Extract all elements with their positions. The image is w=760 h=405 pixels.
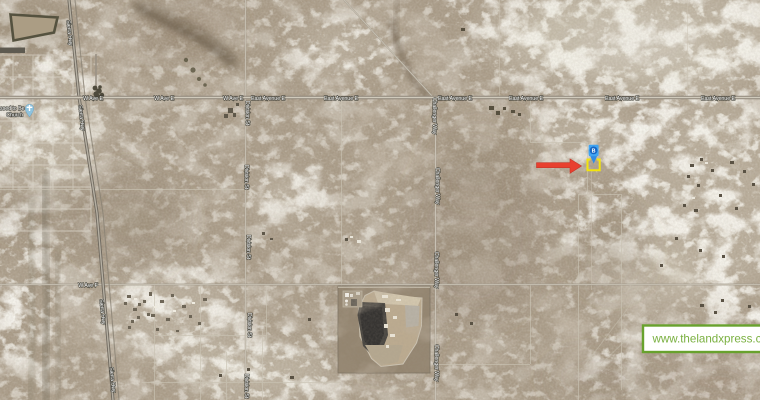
svg-text:Division St: Division St	[246, 313, 252, 338]
svg-text:W Ave E: W Ave E	[154, 96, 174, 102]
svg-text:assed to Be: assed to Be	[0, 106, 25, 112]
svg-text:Division St: Division St	[243, 374, 249, 399]
svg-text:W Ave E: W Ave E	[83, 96, 103, 102]
svg-text:East Avenue E: East Avenue E	[438, 96, 472, 102]
svg-text:Challenger Way: Challenger Way	[431, 98, 437, 135]
svg-text:East Avenue E: East Avenue E	[509, 96, 543, 102]
svg-text:W Ave F: W Ave F	[78, 283, 98, 289]
svg-text:Challenger Way: Challenger Way	[433, 252, 439, 289]
svg-text:East Avenue E: East Avenue E	[701, 96, 735, 102]
svg-text:Division St: Division St	[244, 101, 250, 126]
svg-text:W Ave E: W Ave E	[223, 96, 243, 102]
svg-text:East Avenue E: East Avenue E	[251, 96, 285, 102]
svg-text:Challenger Way: Challenger Way	[433, 345, 439, 382]
svg-text:East Avenue E: East Avenue E	[605, 96, 639, 102]
svg-text:Division St: Division St	[245, 235, 251, 260]
svg-text:Church: Church	[6, 113, 23, 119]
svg-text:Challenger Way: Challenger Way	[434, 168, 440, 205]
svg-text:Division St: Division St	[243, 165, 249, 190]
svg-text:B: B	[592, 148, 596, 154]
svg-text:East Avenue E: East Avenue E	[324, 96, 358, 102]
svg-text:www.thelandxpress.com: www.thelandxpress.com	[652, 333, 760, 346]
